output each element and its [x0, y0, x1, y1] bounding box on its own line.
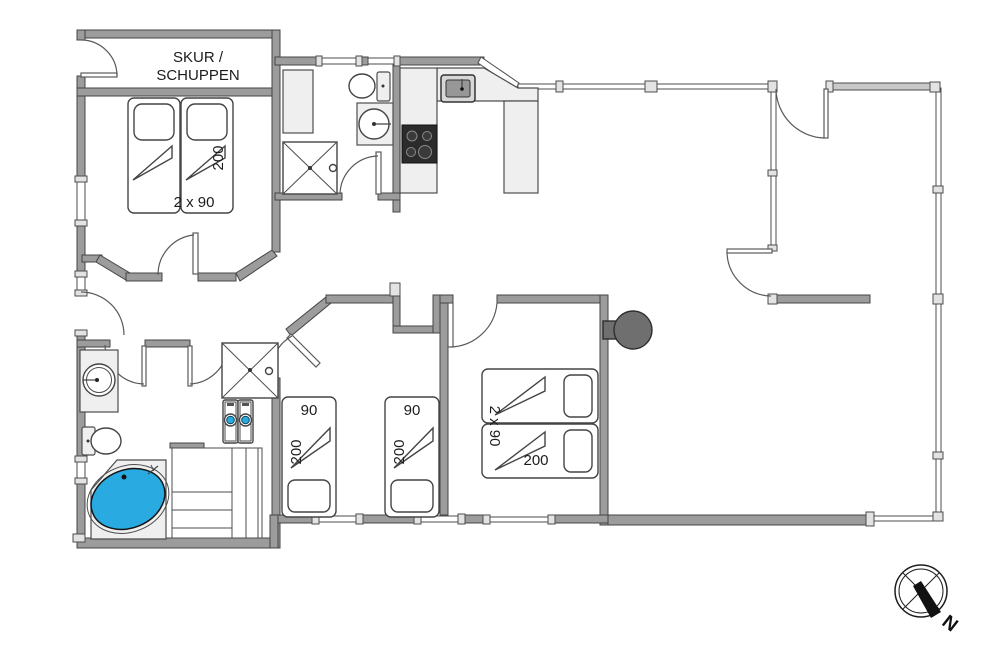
- bed-pillow: [134, 104, 174, 140]
- stairs-outline: [172, 448, 262, 538]
- wood-stove: [603, 311, 652, 349]
- window-cap: [75, 220, 87, 226]
- window-cap: [75, 176, 87, 182]
- window-left-2: [77, 275, 85, 292]
- wall-living-bottom: [608, 515, 870, 525]
- window-cap: [866, 512, 874, 526]
- toilet-top: [349, 72, 390, 101]
- stove-burner: [423, 132, 432, 141]
- wall-kids-bedroom-divider: [440, 303, 448, 515]
- wall-hall-1: [126, 273, 162, 281]
- wall-terrace-divider: [770, 295, 870, 303]
- shower-knob: [330, 165, 337, 172]
- shower-bottom: [222, 343, 278, 398]
- bed-right-length-label: 200: [523, 452, 548, 469]
- door-arc-bedroom-top: [158, 235, 194, 275]
- window-bedroom-right: [487, 517, 550, 522]
- washer-panel: [242, 403, 249, 406]
- bed-pillow: [187, 104, 227, 140]
- bed-right-width-label: 2 x 90: [486, 406, 503, 447]
- bed-pillow: [564, 375, 592, 417]
- shower-drain: [308, 166, 312, 170]
- shed-label-line1: SKUR /: [173, 49, 224, 66]
- stove-burner: [407, 148, 416, 157]
- window-cap: [75, 456, 87, 462]
- kids-bed1-length-label: 200: [288, 439, 305, 464]
- sink-drain: [372, 122, 376, 126]
- compass-north-label: N: [938, 611, 962, 636]
- door-leaf-shed: [81, 73, 117, 77]
- washing-machine-2: [238, 400, 253, 443]
- door-leaf-bedroom-right: [448, 303, 453, 347]
- window-cap: [390, 283, 400, 296]
- window-cap: [933, 512, 943, 521]
- wall-bedroom-right-top-1: [440, 295, 453, 303]
- washer-panel: [227, 403, 234, 406]
- shower-top: [283, 142, 337, 194]
- door-arc-terrace-side: [727, 253, 771, 296]
- window-left-3: [77, 460, 85, 480]
- shower-knob: [266, 368, 273, 375]
- staircase: [172, 448, 262, 538]
- bed-pillow: [564, 430, 592, 472]
- window-cap: [483, 515, 490, 524]
- bathtub-drain: [122, 475, 127, 480]
- window-cap: [394, 56, 400, 66]
- door-leaf-laundry: [188, 346, 192, 386]
- sink-bottom: [80, 350, 118, 412]
- door-arc-shed: [81, 40, 117, 76]
- window-cap: [645, 81, 657, 92]
- door-leaf-bath2: [142, 346, 146, 386]
- wall-closet-right: [433, 295, 440, 333]
- shed-label-line2: SCHUPPEN: [156, 67, 239, 84]
- kitchen-counter-right: [504, 101, 538, 193]
- wall-shed-top: [77, 30, 280, 38]
- wall-hall-2: [198, 273, 236, 281]
- kids-bed1-width-label: 90: [301, 402, 318, 419]
- window-cap: [316, 56, 322, 66]
- sink-top: [357, 103, 393, 145]
- wall-left-1: [77, 96, 85, 180]
- wall-shed-left-post: [77, 30, 85, 40]
- door-leaf-kids: [287, 334, 320, 367]
- wall-bedroom-bottom: [550, 515, 608, 523]
- door-leaf-terrace-side: [727, 249, 772, 253]
- wall-hall-chamfer-left: [96, 255, 130, 280]
- bed-pillow: [288, 480, 330, 512]
- window-top-2: [368, 58, 396, 64]
- window-bottom-right: [874, 516, 936, 521]
- toilet-bottom: [82, 427, 121, 455]
- furniture: [77, 68, 652, 545]
- door-leaf-terrace-top: [824, 89, 828, 138]
- wall-stairs-top: [170, 443, 204, 448]
- wall-top-1: [275, 57, 322, 65]
- toilet-bowl: [91, 428, 121, 454]
- bathroom1-cabinet: [283, 70, 313, 133]
- sink-drain: [95, 378, 99, 382]
- door-leaf-bath1: [376, 152, 381, 194]
- bed-pillow: [391, 480, 433, 512]
- window-cap: [458, 514, 465, 524]
- wall-hall-chamfer-right: [236, 250, 277, 281]
- wall-top-3: [396, 57, 484, 65]
- floor-plan: SKUR / SCHUPPEN 200 2 x 90 90 200 90 200…: [0, 0, 1000, 660]
- door-arc-bath1: [340, 156, 378, 194]
- window-cap: [556, 81, 563, 92]
- kids-bed2-width-label: 90: [404, 402, 421, 419]
- washer-door: [242, 416, 250, 424]
- stove: [402, 125, 437, 163]
- door-arc-entrance: [81, 292, 124, 335]
- kitchen-faucet-head: [460, 87, 464, 91]
- window-cap: [73, 534, 85, 542]
- shower-drain: [248, 368, 252, 372]
- window-cap: [75, 290, 87, 296]
- window-cap: [356, 514, 363, 524]
- window-cap: [933, 294, 943, 304]
- washing-machine-1: [223, 400, 238, 443]
- door-leaf-bedroom-top: [193, 233, 198, 274]
- compass-rose: N: [895, 565, 962, 636]
- toilet-button: [87, 440, 90, 443]
- wall-kitchen: [393, 65, 400, 212]
- door-arc-terrace-top: [776, 89, 824, 138]
- wall-shed-bottom: [77, 88, 280, 96]
- toilet-bowl: [349, 74, 375, 98]
- kitchen-sink-basin: [446, 80, 470, 97]
- bed-top-width-label: 2 x 90: [174, 194, 215, 211]
- window-wall-partition: [771, 88, 776, 250]
- window-top-right-long: [833, 83, 935, 90]
- window-cap: [75, 330, 87, 336]
- bed-top-length-label: 200: [210, 145, 227, 170]
- door-arc-bedroom-right: [451, 303, 497, 347]
- window-cap: [930, 82, 940, 92]
- floor-plan-svg: SKUR / SCHUPPEN 200 2 x 90 90 200 90 200…: [0, 0, 1000, 660]
- wall-kids-top: [326, 295, 395, 303]
- window-top-1: [322, 58, 358, 64]
- window-cap: [933, 452, 943, 459]
- window-cap: [933, 186, 943, 193]
- window-cap: [356, 56, 362, 66]
- kids-bed2-length-label: 200: [391, 439, 408, 464]
- wall-bath2-top-2: [145, 340, 190, 347]
- wall-step-corner: [270, 515, 278, 548]
- wall-left-2: [77, 222, 85, 275]
- wood-stove-body: [614, 311, 652, 349]
- toilet-button: [382, 85, 385, 88]
- window-left-1: [77, 180, 85, 222]
- window-cap: [768, 170, 777, 176]
- window-cap: [548, 515, 555, 524]
- corner-bathtub: [77, 453, 180, 546]
- wall-bedroom-right-top-2: [497, 295, 608, 303]
- stove-burner: [407, 131, 417, 141]
- washer-door: [227, 416, 235, 424]
- wall-kids-chamfer: [286, 297, 331, 336]
- window-cap: [75, 271, 87, 277]
- window-cap: [75, 478, 87, 484]
- stove-burner: [419, 146, 432, 159]
